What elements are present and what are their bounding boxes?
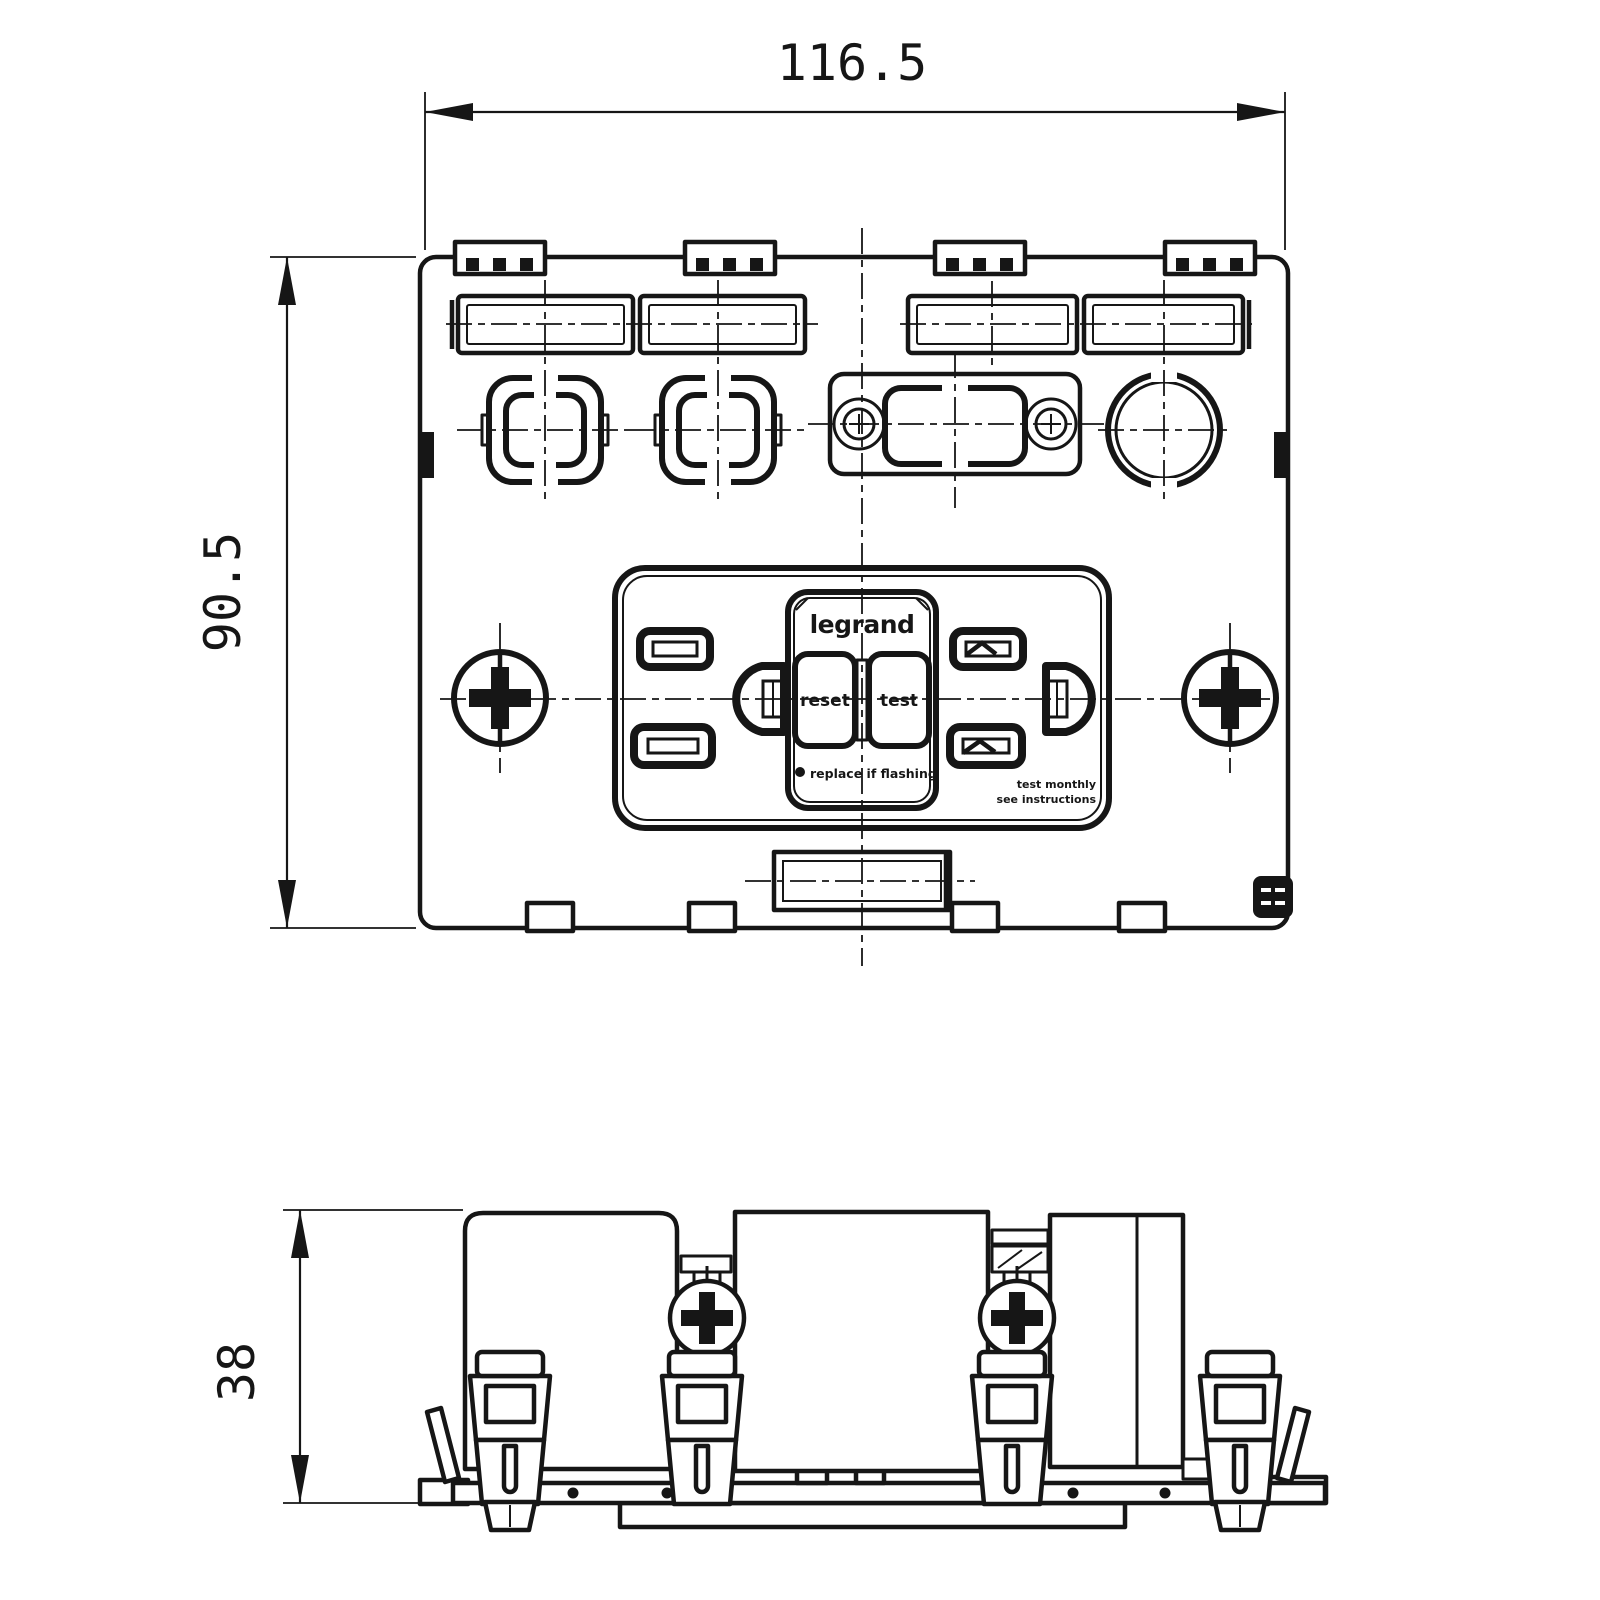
arrowhead-left (425, 103, 473, 121)
thread-detail (992, 1246, 1048, 1272)
bottom-tab (1119, 903, 1165, 931)
mounting-claw (972, 1352, 1052, 1504)
base-step (620, 1503, 1125, 1527)
side-block-center (735, 1212, 988, 1471)
bottom-tab (689, 903, 735, 931)
rivet-dot (662, 1488, 673, 1499)
receptacle-slot (640, 631, 710, 667)
connector-icon (1253, 876, 1293, 918)
technical-drawing: 116.5 90.5 (0, 0, 1600, 1600)
mounting-claw (1200, 1352, 1280, 1504)
release-lever (427, 1408, 459, 1482)
mounting-claw (470, 1352, 550, 1504)
arrowhead-bottom (291, 1455, 309, 1503)
led-indicator-dot (795, 767, 805, 777)
claw-tip (485, 1502, 535, 1530)
dimension-width: 116.5 (425, 34, 1285, 250)
rivet-dot (568, 1488, 579, 1499)
mounting-tab (685, 242, 775, 274)
width-dimension-label: 116.5 (777, 34, 928, 92)
test-button-label: test (880, 691, 918, 711)
rivet-dot (1068, 1488, 1079, 1499)
claw-tip (1215, 1502, 1265, 1530)
corner-note-line1: test monthly (1017, 778, 1096, 791)
base-plate (453, 1483, 1325, 1503)
receptacle-slot (634, 727, 712, 765)
rivet-dot (1160, 1488, 1171, 1499)
arrowhead-top (278, 257, 296, 305)
reset-button: reset (795, 654, 855, 746)
depth-dimension-label: 38 (208, 1342, 266, 1402)
arrowhead-right (1237, 103, 1285, 121)
drawing-page: 116.5 90.5 (0, 0, 1600, 1600)
gap-bridge (992, 1230, 1048, 1244)
receptacle-slot (953, 631, 1023, 667)
bottom-tab (527, 903, 573, 931)
indicator-note: replace if flashing (810, 766, 937, 781)
bottom-tab (952, 903, 998, 931)
right-edge-notch (1274, 432, 1287, 478)
mounting-tab (1165, 242, 1255, 274)
mounting-claw (662, 1352, 742, 1504)
arrowhead-top (291, 1210, 309, 1258)
mounting-tab (935, 242, 1025, 274)
dimension-height: 90.5 (194, 257, 416, 928)
arrowhead-bottom (278, 880, 296, 928)
top-view: legrand reset test replace if flashing t… (420, 228, 1293, 966)
side-view (420, 1212, 1326, 1530)
receptacle-slot (950, 727, 1022, 765)
height-dimension-label: 90.5 (194, 532, 252, 652)
test-button: test (869, 654, 929, 746)
release-lever (1277, 1408, 1309, 1482)
corner-note-line2: see instructions (997, 793, 1097, 806)
side-block-right (1050, 1215, 1183, 1467)
mounting-tab (455, 242, 545, 274)
reset-button-label: reset (800, 691, 850, 711)
left-edge-notch (421, 432, 434, 478)
